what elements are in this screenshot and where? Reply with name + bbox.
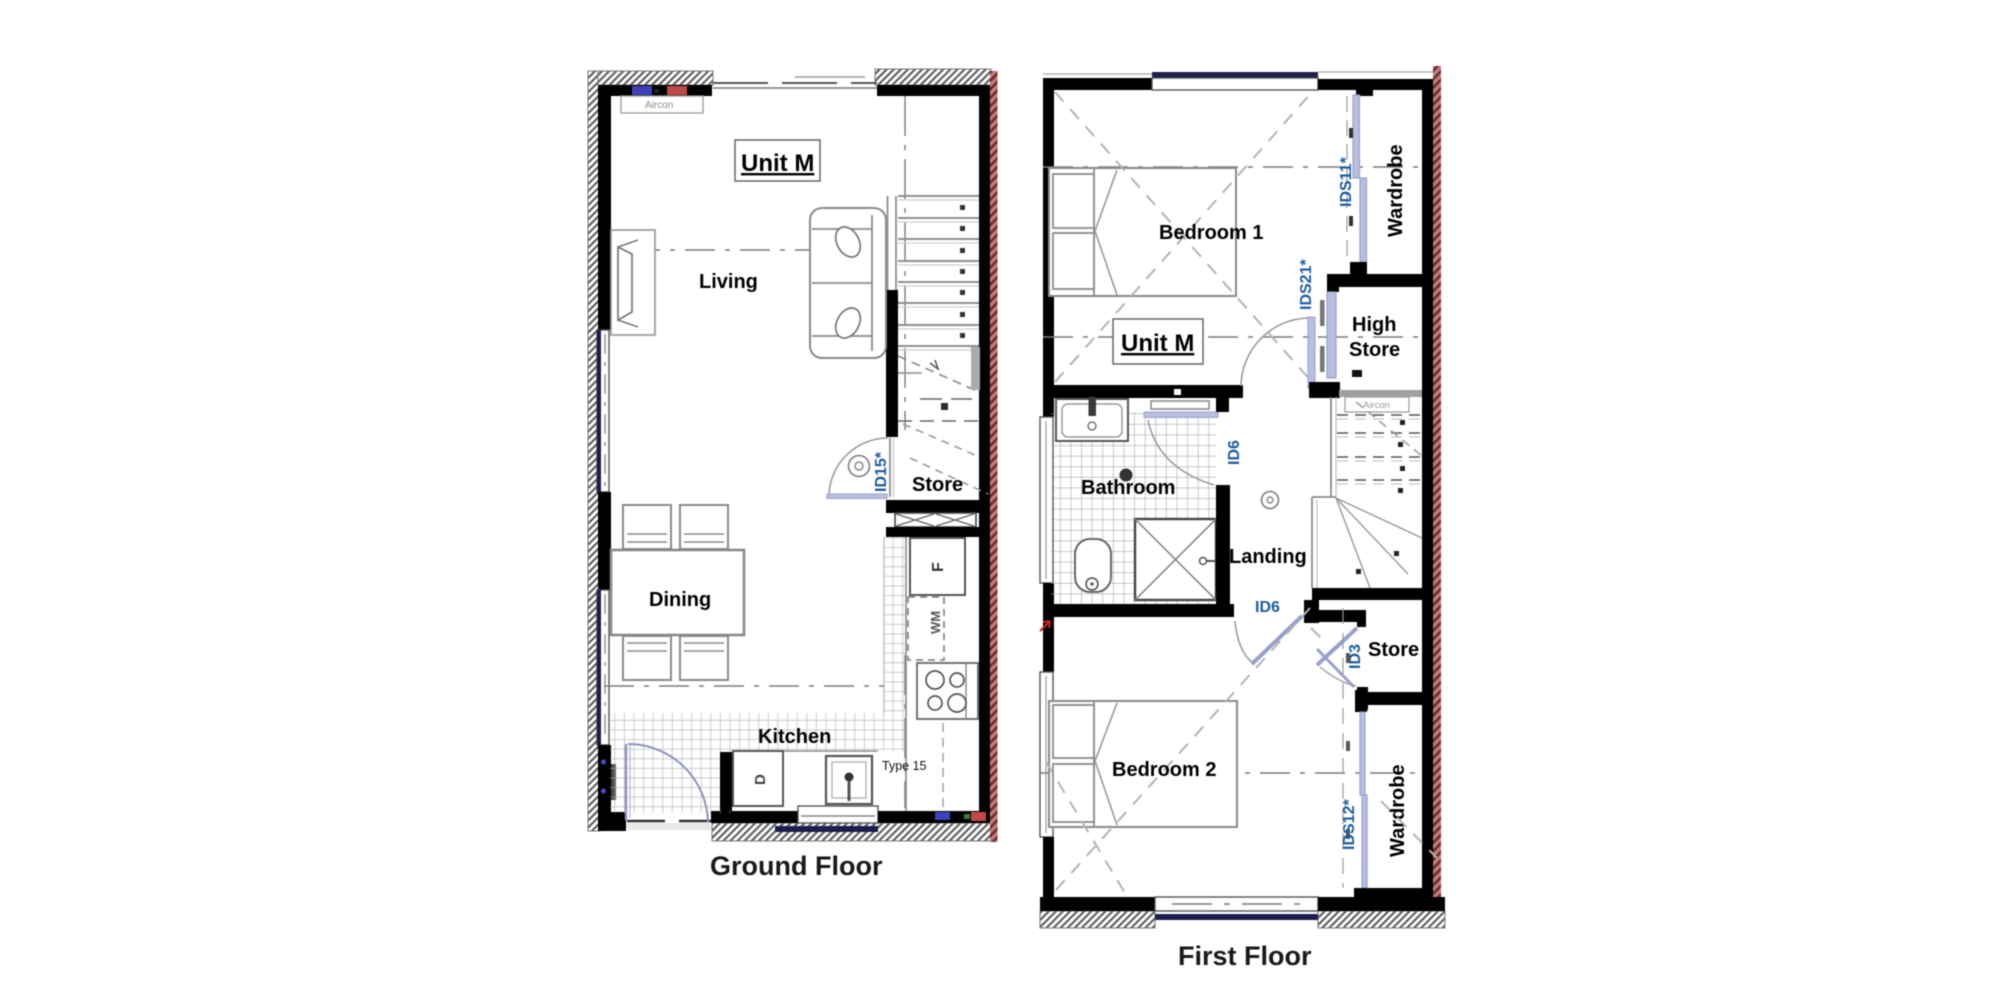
svg-text:IDS11*: IDS11* (1338, 156, 1355, 207)
svg-text:Landing: Landing (1229, 546, 1307, 568)
svg-text:Aircon: Aircon (645, 100, 673, 111)
svg-text:Unit M: Unit M (741, 150, 814, 177)
svg-text:First Floor: First Floor (1178, 941, 1312, 971)
svg-text:IDS12*: IDS12* (1341, 799, 1358, 850)
svg-text:Dining: Dining (649, 589, 711, 611)
svg-text:Ground Floor: Ground Floor (710, 851, 883, 881)
svg-text:Aircon: Aircon (1363, 400, 1390, 411)
svg-text:Store: Store (912, 474, 963, 496)
svg-text:D: D (752, 774, 769, 785)
svg-text:Living: Living (699, 271, 758, 293)
svg-text:Bedroom 2: Bedroom 2 (1112, 759, 1216, 781)
svg-text:ID6: ID6 (1255, 599, 1280, 616)
svg-text:Wardrobe: Wardrobe (1387, 764, 1409, 857)
svg-text:Wardrobe: Wardrobe (1385, 144, 1407, 237)
svg-text:Type 15: Type 15 (882, 759, 927, 773)
svg-text:Kitchen: Kitchen (758, 726, 831, 748)
svg-text:F: F (930, 562, 947, 572)
svg-text:ID6: ID6 (1226, 440, 1243, 465)
svg-text:WM: WM (928, 611, 943, 634)
svg-text:IDS21*: IDS21* (1298, 259, 1315, 310)
svg-text:Unit M: Unit M (1121, 330, 1194, 357)
svg-text:Bedroom 1: Bedroom 1 (1159, 222, 1263, 244)
svg-text:Store: Store (1349, 339, 1400, 361)
svg-text:Store: Store (1368, 639, 1419, 661)
svg-text:Bathroom: Bathroom (1081, 477, 1175, 499)
svg-text:ID15*: ID15* (873, 451, 890, 492)
svg-text:High: High (1352, 314, 1396, 336)
